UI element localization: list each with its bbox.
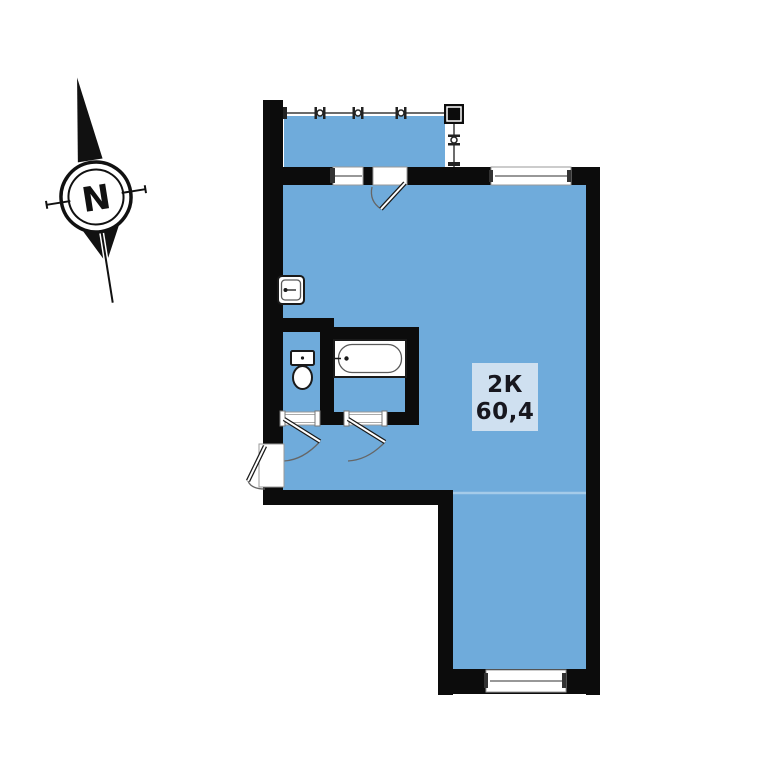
unit-label-badge: 2К 60,4 [472, 363, 538, 431]
bedroom-window-icon [484, 670, 566, 692]
bathtub-icon [334, 340, 406, 377]
balcony-window-icon [330, 167, 363, 185]
wall-bath-bottom-right [385, 412, 419, 425]
compass-rose: N [28, 70, 162, 311]
floor-plan-page: N [0, 0, 768, 768]
floor-plan-canvas: N [0, 0, 768, 768]
unit-area-label: 60,4 [476, 399, 535, 425]
wall-hall-bottom [263, 490, 453, 505]
wall-wc-bottom-left [263, 412, 282, 425]
north-needle-icon [65, 76, 103, 163]
balcony-floor-fill [284, 116, 445, 168]
toilet-icon [291, 351, 314, 389]
sink-icon [278, 276, 304, 304]
wall-top-jamb [362, 167, 373, 185]
wall-top-left-segment [263, 167, 333, 185]
railing-post-icon [448, 135, 460, 146]
entry-door-icon [248, 444, 284, 489]
wall-bath-right [405, 327, 419, 425]
wall-left-upper [263, 100, 283, 445]
unit-type-label: 2К [487, 372, 523, 398]
living-room-window-icon [489, 167, 571, 185]
wall-lower-left [438, 490, 453, 695]
apartment: 2К 60,4 [248, 100, 600, 695]
wall-wc-bath-bottom-mid [318, 412, 346, 425]
wall-right [586, 167, 600, 695]
wall-bath-top [320, 327, 419, 340]
wall-top-middle-segment [407, 167, 491, 185]
